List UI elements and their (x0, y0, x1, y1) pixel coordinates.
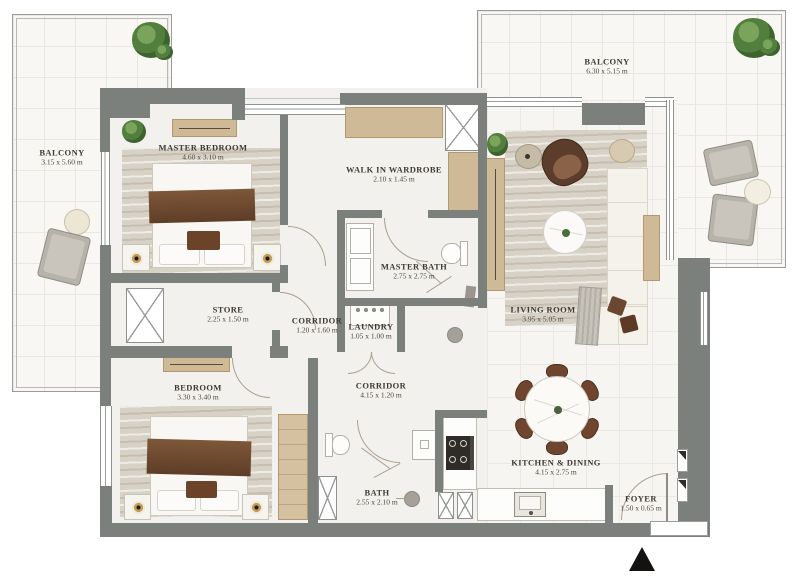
nightstand (122, 244, 150, 271)
wardrobe-shelf (345, 107, 443, 138)
room-label-store: STORE2.25 x 1.50 m (207, 305, 248, 324)
entry-door-leaf (666, 473, 668, 521)
room-label-master-bedroom: MASTER BEDROOM4.60 x 3.10 m (159, 143, 248, 162)
wall (397, 306, 405, 352)
wall (272, 283, 280, 292)
room-label-foyer: FOYER1.50 x 0.65 m (620, 494, 661, 513)
wall (337, 210, 345, 300)
window (666, 100, 674, 260)
entry-threshold (650, 521, 708, 536)
wall (478, 105, 487, 308)
wall (340, 210, 382, 218)
wall (582, 103, 645, 125)
wall-niche (677, 449, 688, 472)
room-label-corridor-2: CORRIDOR4.15 x 1.20 m (356, 381, 406, 400)
lamp-icon (261, 252, 274, 265)
bed-blanket (147, 439, 252, 477)
wardrobe-panel (448, 152, 480, 212)
shaft (438, 492, 454, 519)
console-table (643, 215, 660, 281)
room-label-master-bath: MASTER BATH2.75 x 2.75 m (381, 262, 447, 281)
entrance-arrow-icon (629, 547, 655, 571)
balcony-side-table (64, 209, 90, 235)
window (245, 104, 345, 115)
nightstand (242, 494, 269, 520)
coffee-table (543, 210, 587, 254)
lamp-icon (132, 501, 145, 514)
plant-icon (122, 120, 146, 143)
wall (270, 346, 288, 358)
room-label-kitchen-dining: KITCHEN & DINING4.15 x 2.75 m (511, 458, 601, 477)
lamp-icon (130, 252, 143, 265)
master-bed-blanket (149, 189, 256, 224)
dresser (163, 356, 230, 372)
window (700, 292, 708, 345)
bed-cushion (187, 231, 220, 250)
plant-icon (487, 133, 508, 156)
shaft (445, 104, 482, 151)
wall (428, 210, 480, 218)
nightstand (124, 494, 151, 520)
media-console (486, 158, 505, 291)
room-label-laundry: LAUNDRY1.05 x 1.00 m (348, 322, 393, 341)
stool (447, 327, 463, 343)
bath-sink (412, 430, 436, 460)
room-label-bath: BATH2.55 x 2.10 m (356, 488, 397, 507)
wall (340, 93, 487, 105)
wall (100, 245, 111, 406)
side-table (609, 139, 635, 163)
room-label-corridor-1: CORRIDOR1.20 x 1.60 m (292, 316, 342, 335)
wall (605, 485, 613, 523)
wall (110, 273, 288, 283)
room-label-bedroom: BEDROOM3.30 x 3.40 m (174, 383, 222, 402)
toilet-tank (460, 241, 468, 266)
shaft (457, 492, 473, 519)
wall (232, 88, 245, 120)
stove-icon (446, 436, 474, 470)
window (100, 406, 112, 486)
window-sill (245, 98, 345, 99)
wall (100, 104, 110, 152)
bedroom-bench (172, 119, 237, 137)
wall (280, 104, 288, 225)
sink (350, 228, 371, 254)
kitchen-sink (514, 492, 546, 517)
wall (150, 88, 245, 104)
dining-chair (546, 440, 568, 455)
bed-cushion (186, 481, 217, 498)
sofa (607, 168, 648, 308)
shaft (318, 476, 337, 520)
room-label-balcony-left: BALCONY3.15 x 5.60 m (39, 148, 84, 167)
window (101, 152, 110, 245)
wall (435, 410, 487, 418)
wall (337, 298, 480, 306)
pedestal-basin (404, 491, 420, 507)
room-label-living-room: LIVING ROOM3.95 x 5.05 m (510, 305, 575, 324)
nightstand (253, 244, 281, 271)
wall-niche (677, 478, 688, 502)
room-label-balcony-right: BALCONY6.30 x 5.15 m (584, 57, 629, 76)
window (487, 97, 582, 107)
balcony-coffee-table (744, 179, 771, 205)
lamp-icon (250, 501, 263, 514)
wall (308, 358, 318, 523)
room-label-walk-in-wardrobe: WALK IN WARDROBE2.10 x 1.45 m (346, 165, 442, 184)
toilet-icon (332, 435, 350, 455)
dining-table (524, 376, 590, 442)
side-table (515, 144, 542, 169)
sink (350, 258, 371, 284)
wall-bottom (100, 523, 710, 537)
plant-icon (760, 38, 780, 56)
wall (110, 346, 232, 358)
store-closet (126, 288, 164, 343)
floor-plan: BALCONY3.15 x 5.60 m BALCONY6.30 x 5.15 … (0, 0, 800, 577)
built-in-wardrobe (278, 414, 308, 520)
wall (435, 418, 443, 492)
plant-icon (155, 44, 173, 60)
throw-runner (575, 286, 602, 345)
